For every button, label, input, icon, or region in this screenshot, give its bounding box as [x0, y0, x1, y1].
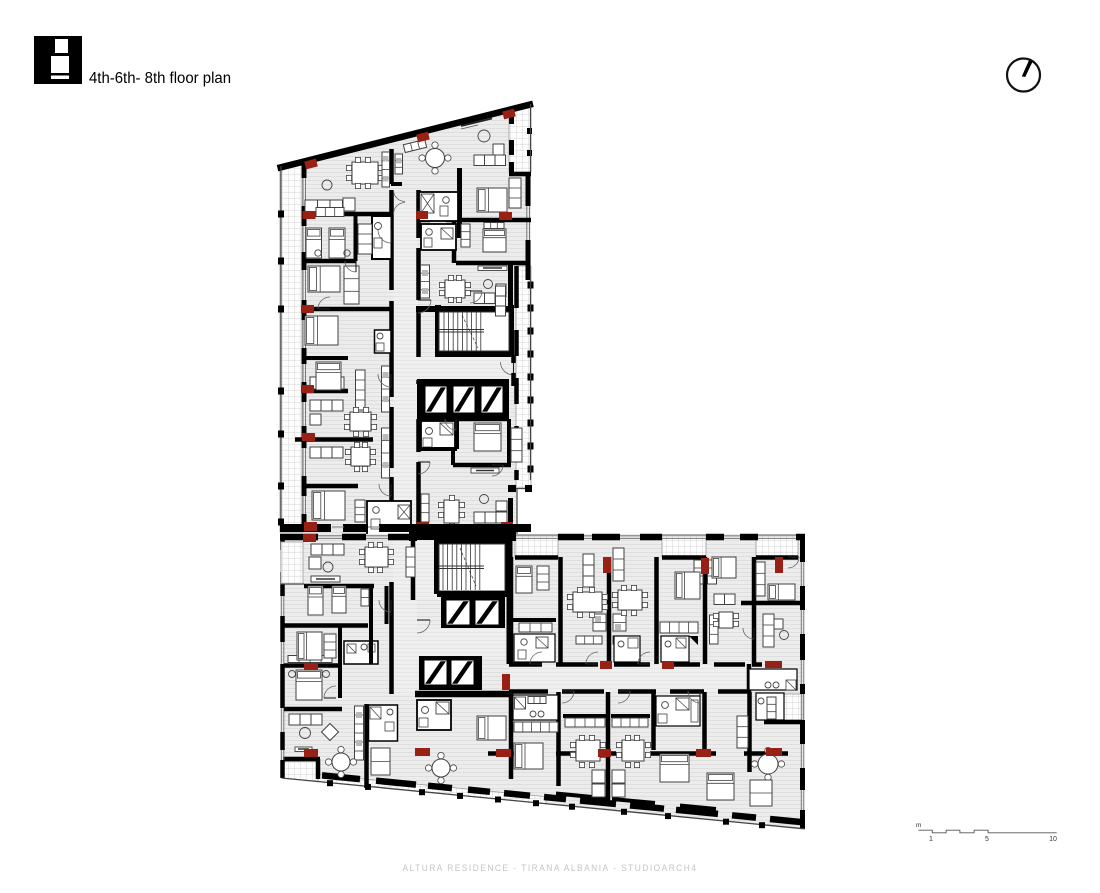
svg-text:5: 5: [985, 836, 989, 843]
svg-text:m: m: [916, 822, 921, 829]
svg-text:4th-6th- 8th floor plan: 4th-6th- 8th floor plan: [89, 70, 231, 87]
svg-text:10: 10: [1049, 836, 1057, 843]
svg-text:1: 1: [929, 836, 933, 843]
svg-text:ALTURA RESIDENCE - TIRANA AL: ALTURA RESIDENCE - TIRANA ALBANIA - STUD…: [403, 863, 698, 873]
